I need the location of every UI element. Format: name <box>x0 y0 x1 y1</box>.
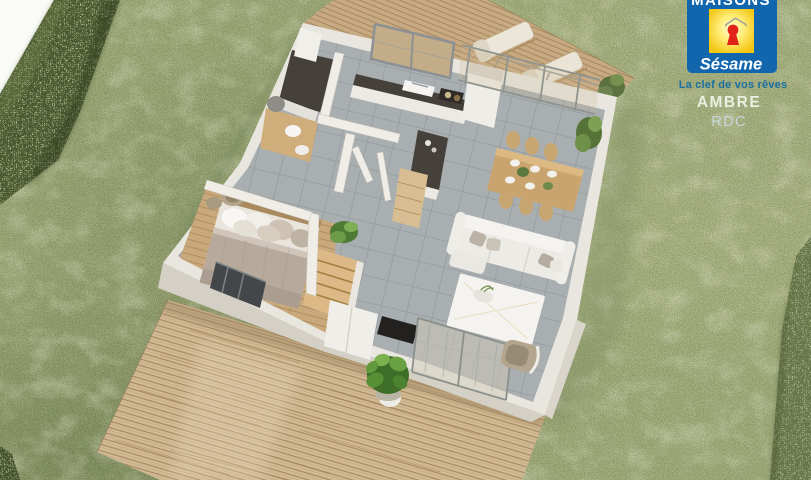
svg-text:RDC: RDC <box>711 113 747 130</box>
svg-text:La clef de vos rêves: La clef de vos rêves <box>679 79 788 91</box>
svg-text:Sésame: Sésame <box>700 56 762 74</box>
svg-text:MAISONS: MAISONS <box>691 0 771 9</box>
svg-text:AMBRE: AMBRE <box>697 94 761 111</box>
